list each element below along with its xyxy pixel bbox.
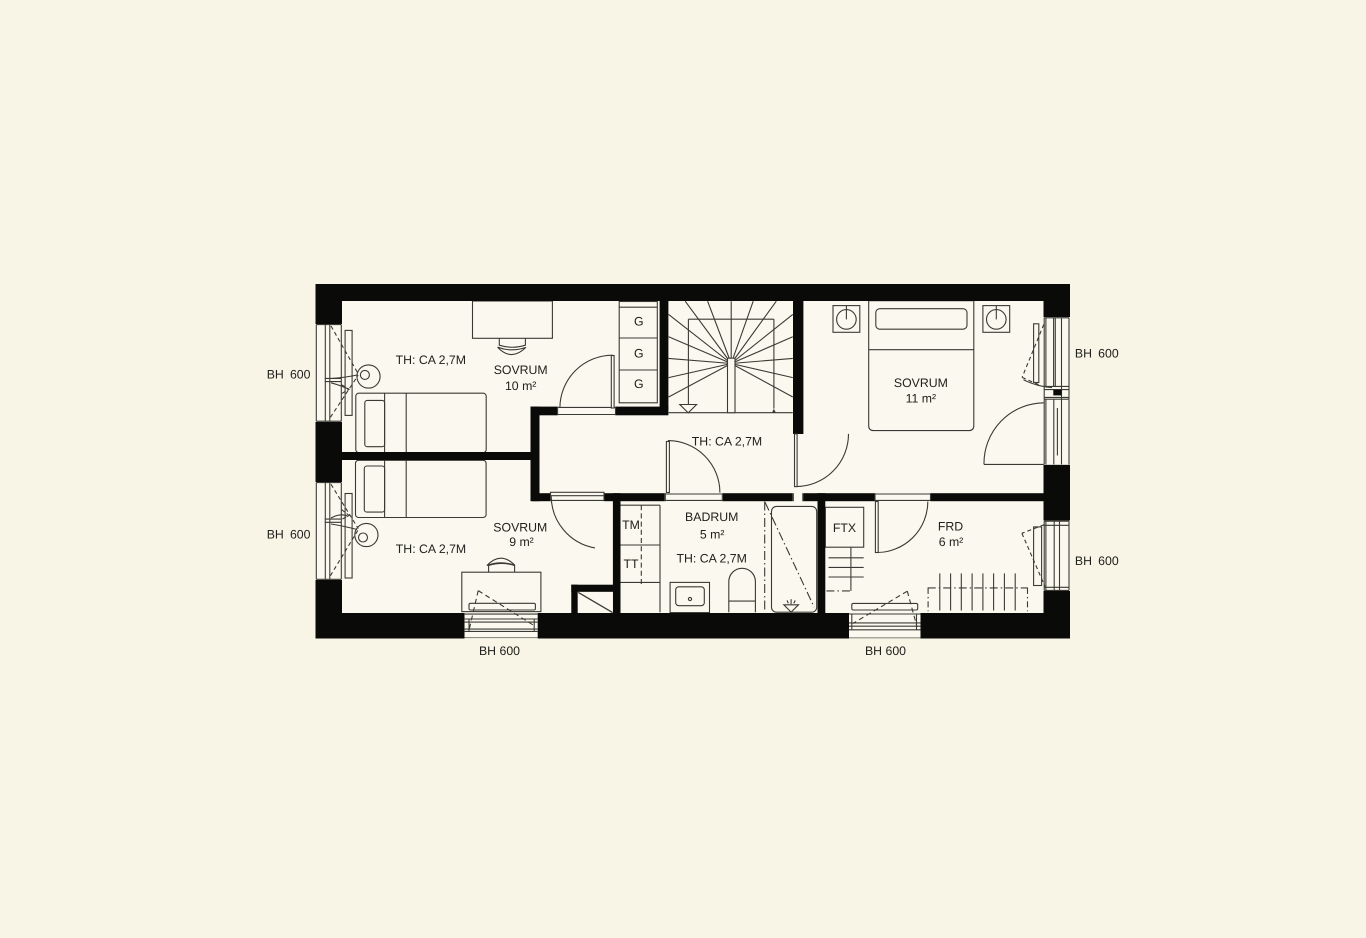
svg-text:BADRUM: BADRUM (685, 510, 738, 524)
svg-text:TM: TM (622, 518, 640, 532)
svg-text:TH: CA 2,7M: TH: CA 2,7M (396, 353, 466, 367)
svg-text:BH 600: BH 600 (479, 644, 520, 658)
svg-text:TH: CA 2,7M: TH: CA 2,7M (396, 542, 466, 556)
svg-text:SOVRUM: SOVRUM (494, 363, 548, 377)
svg-text:SOVRUM: SOVRUM (894, 376, 948, 390)
svg-text:G: G (634, 314, 644, 328)
svg-text:10 m²: 10 m² (505, 379, 536, 393)
svg-text:TH: CA 2,7M: TH: CA 2,7M (692, 435, 762, 449)
svg-text:BH 600: BH 600 (865, 644, 906, 658)
svg-text:11 m²: 11 m² (906, 391, 937, 405)
svg-text:TT: TT (623, 557, 639, 571)
svg-text:BH 600: BH 600 (267, 527, 311, 541)
svg-text:BH 600: BH 600 (1075, 554, 1119, 568)
svg-text:9 m²: 9 m² (509, 535, 534, 549)
svg-text:TH: CA 2,7M: TH: CA 2,7M (677, 552, 747, 566)
svg-text:BH 600: BH 600 (267, 368, 311, 382)
svg-text:G: G (634, 377, 644, 391)
svg-text:SOVRUM: SOVRUM (493, 520, 547, 534)
svg-text:5 m²: 5 m² (700, 527, 725, 541)
svg-text:FRD: FRD (938, 520, 963, 534)
svg-text:G: G (634, 346, 644, 360)
svg-text:FTX: FTX (833, 521, 856, 535)
svg-text:BH 600: BH 600 (1075, 347, 1119, 361)
svg-text:6 m²: 6 m² (939, 535, 964, 549)
